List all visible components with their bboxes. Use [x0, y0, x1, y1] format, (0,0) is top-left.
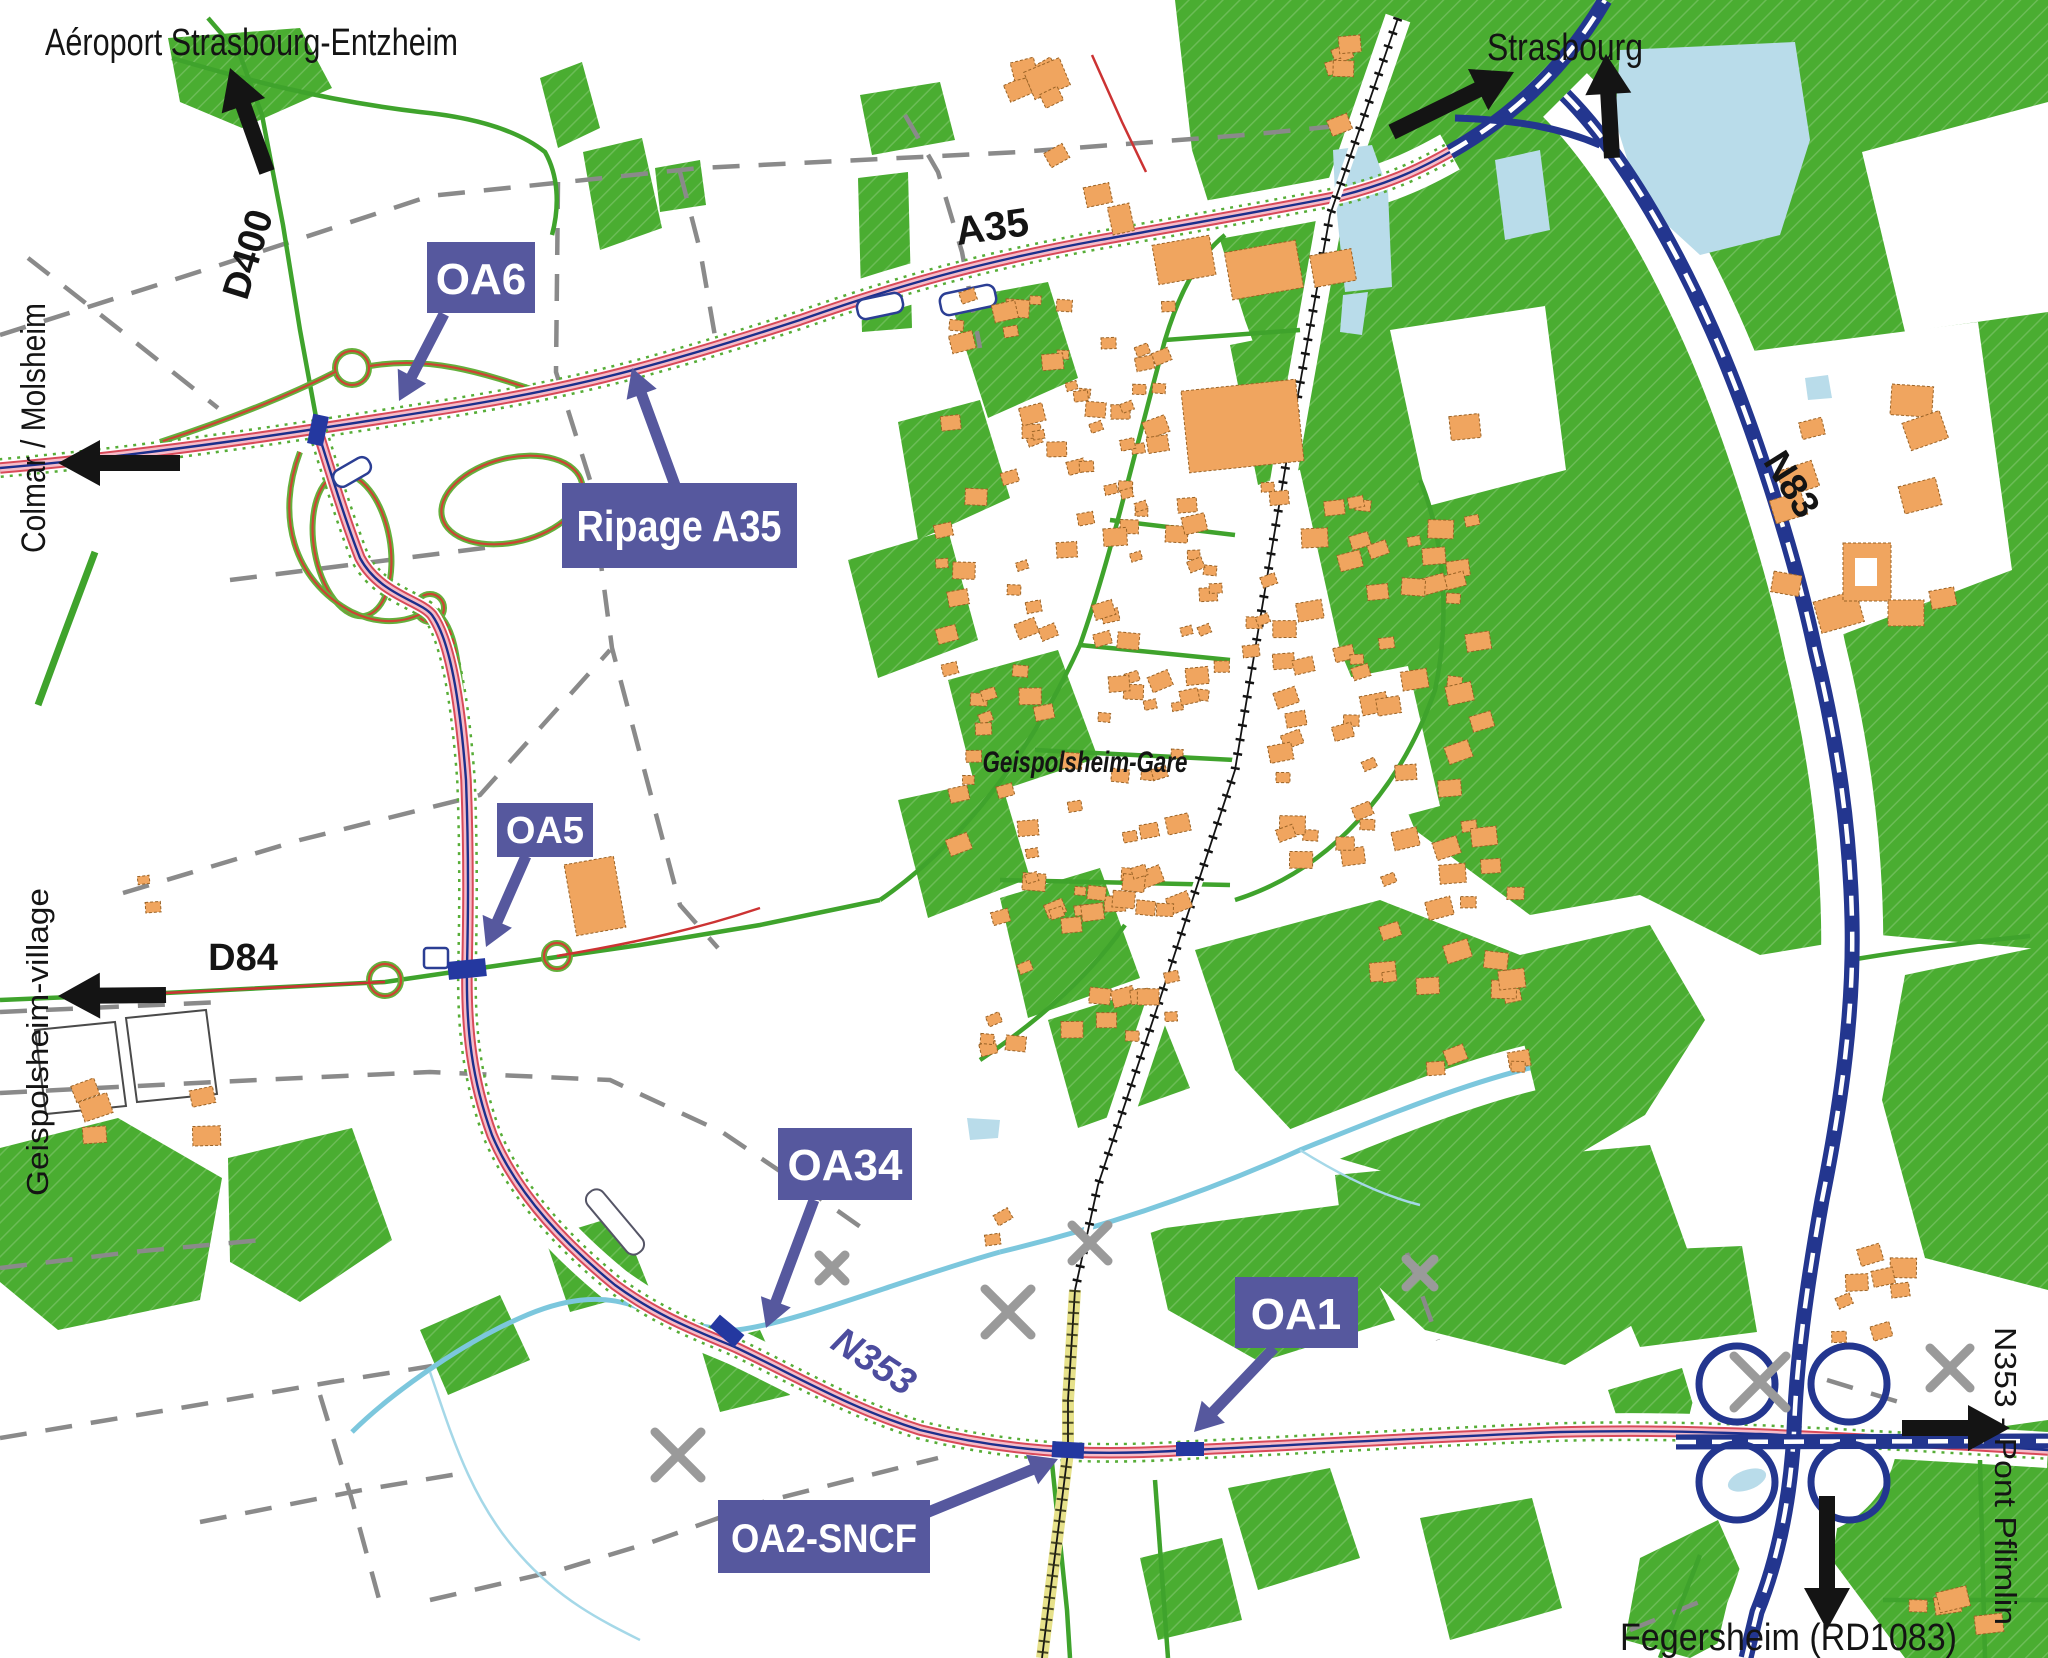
map-canvas: OA6 Ripage A35 OA5 OA34 OA1 OA2-SNCF Aér… — [0, 0, 2048, 1658]
callout-oa5-label: OA5 — [506, 810, 584, 852]
callout-oa2-sncf: OA2-SNCF — [718, 1500, 930, 1573]
callout-oa5: OA5 — [497, 803, 593, 857]
label-airport: Aéroport Strasbourg-Entzheim — [45, 22, 458, 64]
label-strasbourg: Strasbourg — [1487, 27, 1643, 69]
callout-oa1-label: OA1 — [1251, 1290, 1341, 1339]
roadworks-map: OA6 Ripage A35 OA5 OA34 OA1 OA2-SNCF Aér… — [0, 0, 2048, 1658]
callout-oa6: OA6 — [427, 242, 535, 313]
callout-ripage-a35-label: Ripage A35 — [577, 502, 782, 551]
label-colmar-molsheim: Colmar / Molsheim — [15, 303, 53, 553]
callout-oa34: OA34 — [778, 1128, 912, 1200]
callout-oa34-label: OA34 — [788, 1141, 903, 1190]
callout-oa2-sncf-label: OA2-SNCF — [731, 1517, 917, 1561]
label-geispolsheim-village: Geispolsheim-village — [20, 888, 55, 1196]
label-fegersheim: Fegersheim (RD1083) — [1620, 1617, 1957, 1658]
callout-oa6-label: OA6 — [436, 255, 526, 304]
callout-ripage-a35: Ripage A35 — [562, 483, 797, 568]
label-pont-pflimlin: N353 - Pont Pflimlin — [1988, 1327, 2023, 1625]
label-d84: D84 — [208, 937, 278, 979]
label-geispolsheim-gare: Geispolsheim-Gare — [983, 746, 1188, 779]
callout-oa1: OA1 — [1235, 1277, 1358, 1348]
